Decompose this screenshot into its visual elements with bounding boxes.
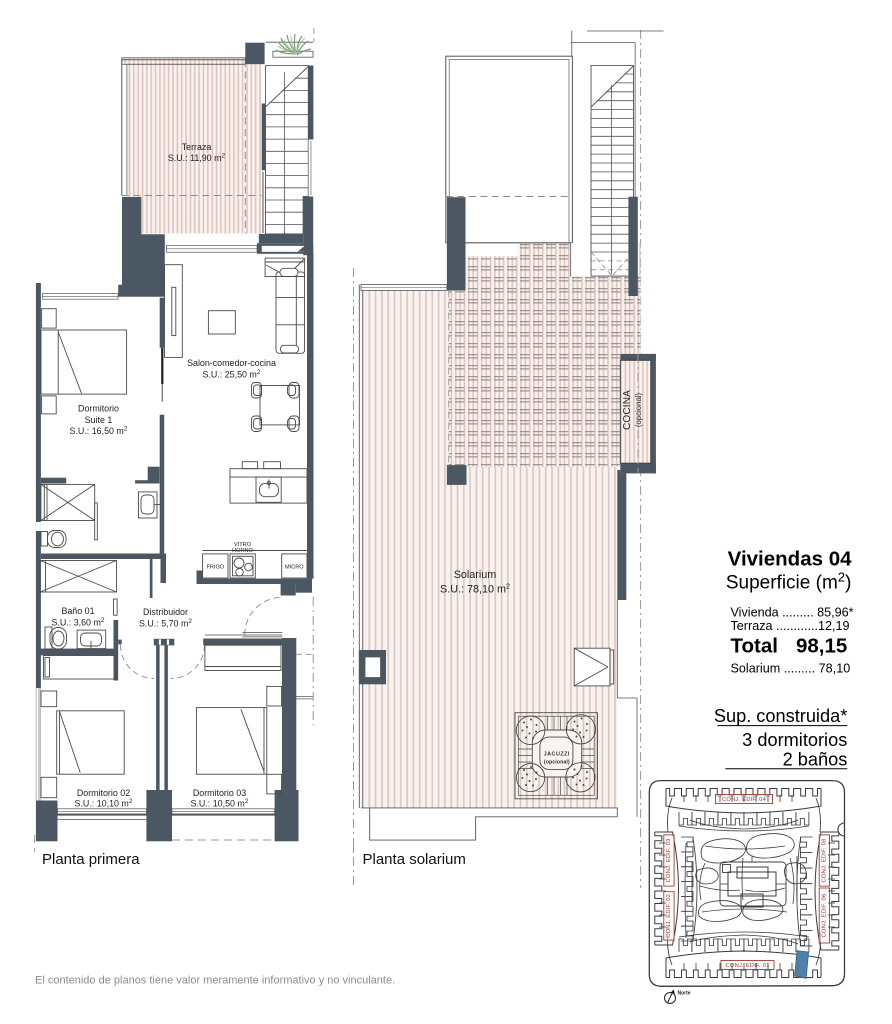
- svg-text:Distribuidor: Distribuidor: [143, 607, 188, 617]
- svg-text:CONJ. EDIF. 08: CONJ. EDIF. 08: [821, 838, 827, 882]
- svg-text:Sup. construida*: Sup. construida*: [714, 706, 847, 726]
- svg-text:S.U.: 10,50 m2: S.U.: 10,50 m2: [191, 798, 249, 809]
- svg-text:COCINA: COCINA: [622, 390, 633, 430]
- svg-text:Norte: Norte: [678, 991, 691, 997]
- svg-text:2 baños: 2 baños: [783, 750, 848, 770]
- svg-text:CONJ. EDIF. 02: CONJ. EDIF. 02: [666, 894, 672, 938]
- svg-text:El contenido de planos tiene v: El contenido de planos tiene valor meram…: [35, 975, 395, 987]
- svg-text:Viviendas 04: Viviendas 04: [728, 548, 852, 571]
- svg-text:S.U.: 78,10 m2: S.U.: 78,10 m2: [440, 583, 510, 595]
- svg-text:HORNO: HORNO: [232, 548, 253, 554]
- svg-text:Dormitorio: Dormitorio: [78, 404, 119, 414]
- svg-text:(opcional): (opcional): [544, 760, 570, 766]
- svg-text:Dormitorio 03: Dormitorio 03: [193, 788, 246, 798]
- svg-text:Solarium ......... 78,10: Solarium ......... 78,10: [731, 662, 851, 676]
- svg-text:S.U.: 10,10 m2: S.U.: 10,10 m2: [75, 798, 133, 809]
- svg-text:Salon-comedor-cocina: Salon-comedor-cocina: [187, 358, 276, 368]
- svg-text:S.U.: 11,90 m2: S.U.: 11,90 m2: [168, 152, 226, 163]
- svg-text:FRIGO: FRIGO: [206, 565, 224, 571]
- svg-text:S.U.: 5,70 m2: S.U.: 5,70 m2: [139, 618, 192, 629]
- svg-text:S.U.: 16,50 m2: S.U.: 16,50 m2: [70, 425, 128, 436]
- svg-text:3 dormitorios: 3 dormitorios: [742, 730, 847, 750]
- svg-text:CONJ. EDIF. 06: CONJ. EDIF. 06: [821, 893, 827, 937]
- svg-text:S.U.: 3,60 m2: S.U.: 3,60 m2: [52, 617, 105, 628]
- svg-text:Terraza ............12,19: Terraza ............12,19: [731, 619, 850, 633]
- svg-text:Total: Total: [731, 635, 778, 658]
- svg-text:Vivienda ......... 85,96*: Vivienda ......... 85,96*: [731, 606, 854, 620]
- svg-text:Planta primera: Planta primera: [42, 851, 140, 868]
- svg-text:MICRO: MICRO: [285, 565, 304, 571]
- svg-text:Baño 01: Baño 01: [61, 606, 94, 616]
- svg-text:98,15: 98,15: [796, 635, 847, 658]
- svg-text:Superficie (m2): Superficie (m2): [726, 570, 852, 594]
- svg-text:Terraza: Terraza: [182, 142, 212, 152]
- svg-text:CONJ. EDIF. 03: CONJ. EDIF. 03: [666, 838, 672, 882]
- svg-text:S.U.: 25,50 m2: S.U.: 25,50 m2: [203, 369, 261, 380]
- svg-text:Planta solarium: Planta solarium: [363, 851, 466, 868]
- svg-text:JACUZZI: JACUZZI: [544, 752, 570, 758]
- svg-text:Dormitorio 02: Dormitorio 02: [77, 788, 130, 798]
- svg-text:Solarium: Solarium: [454, 569, 497, 581]
- svg-text:Suite 1: Suite 1: [85, 415, 113, 425]
